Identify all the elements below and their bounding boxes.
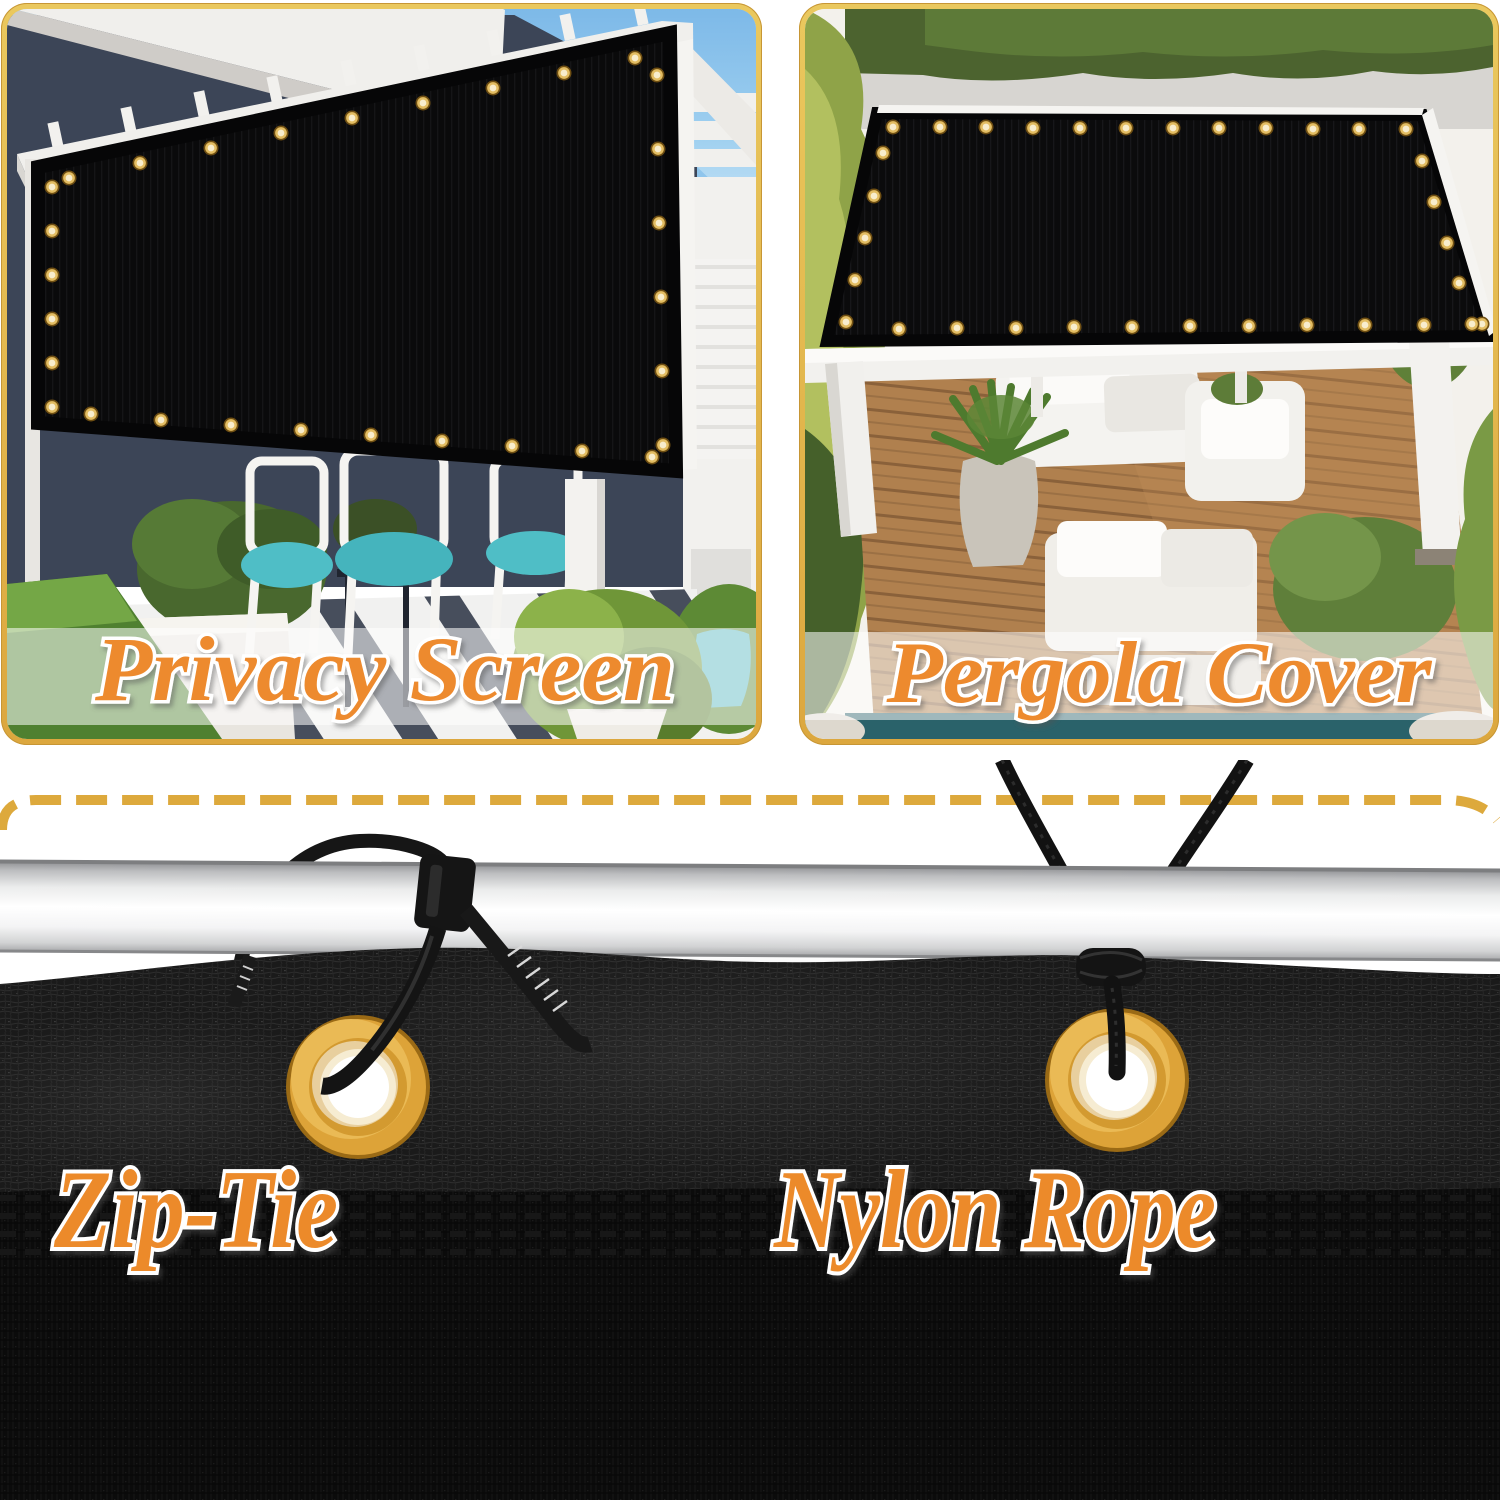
svg-text:Privacy Screen: Privacy Screen [94,618,675,720]
svg-text:Nylon Rope: Nylon Rope [772,1148,1216,1272]
svg-text:Zip-Tie: Zip-Tie [53,1148,338,1272]
svg-text:Pergola Cover: Pergola Cover [885,625,1432,722]
